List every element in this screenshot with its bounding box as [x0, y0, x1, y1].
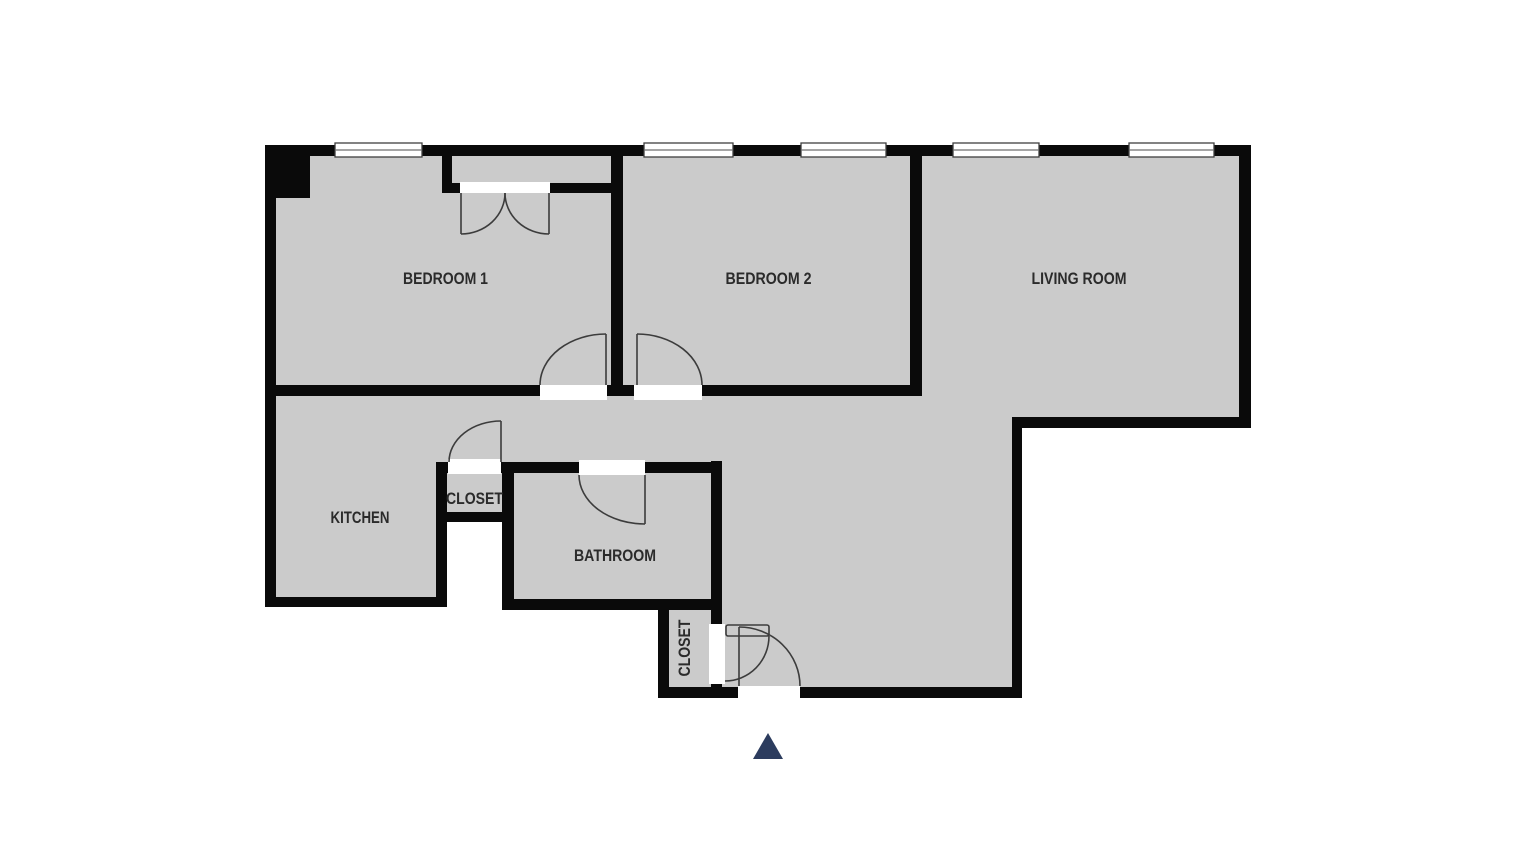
svg-text:BEDROOM 1: BEDROOM 1 [403, 269, 488, 288]
svg-text:KITCHEN: KITCHEN [331, 508, 390, 527]
svg-text:LIVING ROOM: LIVING ROOM [1032, 269, 1127, 288]
svg-text:BEDROOM 2: BEDROOM 2 [726, 269, 812, 288]
svg-text:BATHROOM: BATHROOM [574, 546, 656, 565]
svg-text:CLOSET: CLOSET [446, 489, 504, 508]
svg-text:CLOSET: CLOSET [675, 619, 694, 677]
